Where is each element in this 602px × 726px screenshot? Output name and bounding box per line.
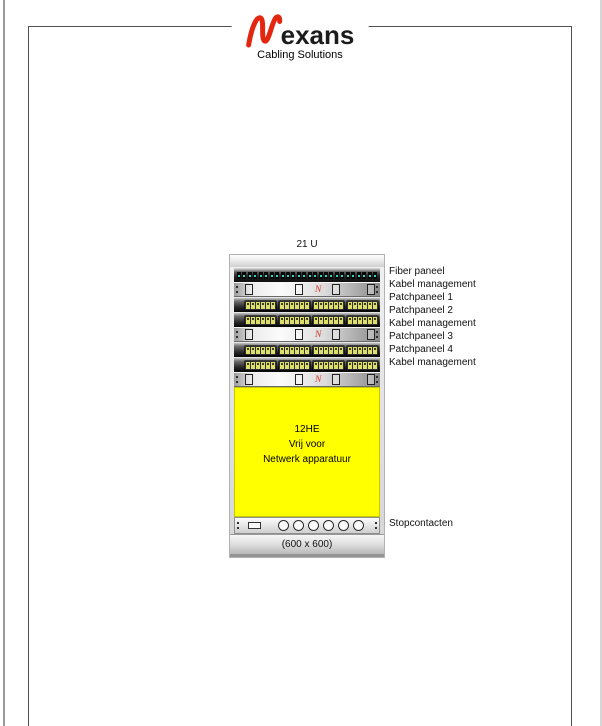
jack-group [279, 301, 310, 310]
rj45-jack-icon [261, 302, 265, 309]
nexans-logo: exans Cabling Solutions [232, 5, 369, 61]
mounting-holes-icon [236, 331, 238, 338]
document-page: exans Cabling Solutions 21 U NNN 12HE Vr… [0, 0, 602, 726]
rj45-jack-icon [271, 362, 275, 369]
rj45-jack-icon [246, 347, 250, 354]
mounting-holes-icon [376, 286, 378, 293]
rj45-jack-icon [358, 347, 362, 354]
unit-label: Kabel management [389, 278, 476, 291]
jack-groups [234, 357, 380, 370]
patch-panel [234, 297, 380, 312]
unit-label: Patchpaneel 3 [389, 330, 476, 343]
rj45-jack-icon [305, 347, 309, 354]
rj45-jack-icon [368, 362, 372, 369]
cable-management-panel: N [234, 282, 380, 297]
fiber-port-icon [362, 272, 366, 279]
cable-ring-icon [332, 374, 340, 385]
fiber-port-icon [313, 272, 317, 279]
power-outlet-icon [323, 520, 334, 531]
jack-groups [234, 342, 380, 355]
server-rack: NNN 12HE Vrij voor Netwerk apparatuur (6… [229, 254, 385, 558]
rj45-jack-icon [266, 362, 270, 369]
cable-ring-icon [295, 329, 303, 340]
logo-subtitle: Cabling Solutions [246, 49, 355, 61]
fiber-panel [234, 267, 380, 282]
mounting-holes-icon [236, 286, 238, 293]
free-space-line: Vrij voor [289, 437, 325, 452]
mounting-holes-icon [237, 522, 239, 529]
rj45-jack-icon [373, 317, 377, 324]
window-edge-left [3, 0, 5, 726]
rj45-jack-icon [246, 302, 250, 309]
free-space-line: Netwerk apparatuur [263, 452, 351, 467]
power-outlet-icon [353, 520, 364, 531]
rj45-jack-icon [246, 362, 250, 369]
rj45-jack-icon [339, 347, 343, 354]
rj45-jack-icon [285, 347, 289, 354]
rj45-jack-icon [334, 347, 338, 354]
jack-group [245, 301, 276, 310]
jack-group [245, 316, 276, 325]
cable-ring-icon [367, 374, 375, 385]
rj45-jack-icon [290, 362, 294, 369]
cable-ring-icon [295, 284, 303, 295]
power-outlet-icon [308, 520, 319, 531]
cable-management-row: N [234, 283, 380, 296]
rj45-jack-icon [300, 362, 304, 369]
rj45-jack-icon [280, 347, 284, 354]
rj45-jack-icon [368, 302, 372, 309]
rj45-jack-icon [334, 317, 338, 324]
jack-group [313, 316, 344, 325]
unit-label: Patchpaneel 1 [389, 291, 476, 304]
fiber-port-icon [248, 272, 252, 279]
rj45-jack-icon [329, 317, 333, 324]
rj45-jack-icon [251, 347, 255, 354]
rj45-jack-icon [319, 302, 323, 309]
jack-group [279, 361, 310, 370]
rj45-jack-icon [339, 317, 343, 324]
nexans-n-icon [246, 11, 284, 49]
rj45-jack-icon [300, 302, 304, 309]
fiber-port-icon [259, 272, 263, 279]
rj45-jack-icon [334, 302, 338, 309]
unit-label: Fiber paneel [389, 265, 476, 278]
free-space-line: 12HE [294, 422, 319, 437]
fiber-port-icon [368, 272, 372, 279]
rj45-jack-icon [348, 302, 352, 309]
logo-row: exans [246, 5, 355, 46]
unit-label: Patchpaneel 4 [389, 343, 476, 356]
fiber-port-icon [302, 272, 306, 279]
fiber-port-icon [373, 272, 377, 279]
jack-group [313, 361, 344, 370]
cable-management-panel: N [234, 372, 380, 387]
mounting-holes-icon [236, 376, 238, 383]
fiber-port-icon [242, 272, 246, 279]
rj45-jack-icon [305, 302, 309, 309]
rj45-jack-icon [324, 317, 328, 324]
rj45-jack-icon [373, 347, 377, 354]
rack-unit-labels: Fiber paneel Kabel management Patchpanee… [389, 265, 476, 369]
rj45-jack-icon [295, 347, 299, 354]
fiber-port-icon [329, 272, 333, 279]
rj45-jack-icon [319, 347, 323, 354]
jack-group [347, 301, 378, 310]
jack-group [245, 361, 276, 370]
jack-group [313, 346, 344, 355]
fiber-port-icon [319, 272, 323, 279]
rj45-jack-icon [319, 317, 323, 324]
rj45-jack-icon [295, 302, 299, 309]
patch-panel [234, 312, 380, 327]
logo-wordmark: exans [281, 25, 355, 46]
rj45-jack-icon [334, 362, 338, 369]
rj45-jack-icon [280, 362, 284, 369]
rj45-jack-icon [280, 302, 284, 309]
rj45-jack-icon [363, 302, 367, 309]
fiber-port-icon [291, 272, 295, 279]
fiber-port-icon [308, 272, 312, 279]
mounting-holes-icon [376, 376, 378, 383]
rj45-jack-icon [256, 347, 260, 354]
rj45-jack-icon [373, 362, 377, 369]
fiber-port-icon [351, 272, 355, 279]
fiber-port-icon [275, 272, 279, 279]
rj45-jack-icon [266, 317, 270, 324]
rj45-jack-icon [295, 317, 299, 324]
rj45-jack-icon [290, 302, 294, 309]
rj45-jack-icon [339, 302, 343, 309]
rj45-jack-icon [324, 302, 328, 309]
rj45-jack-icon [329, 347, 333, 354]
jack-group [347, 346, 378, 355]
rj45-jack-icon [285, 317, 289, 324]
rj45-jack-icon [324, 347, 328, 354]
rj45-jack-icon [300, 317, 304, 324]
rj45-jack-icon [314, 302, 318, 309]
cable-ring-icon [245, 284, 253, 295]
fiber-port-icon [270, 272, 274, 279]
cable-ring-icon [245, 374, 253, 385]
fiber-port-icon [340, 272, 344, 279]
power-outlet-icon [278, 520, 289, 531]
patch-panel [234, 342, 380, 357]
rack-height-label: 21 U [229, 239, 385, 250]
rack-units: NNN [234, 267, 380, 387]
rj45-jack-icon [358, 317, 362, 324]
fiber-port-icon [297, 272, 301, 279]
fiber-port-icon [324, 272, 328, 279]
cable-management-row: N [234, 328, 380, 341]
rj45-jack-icon [348, 362, 352, 369]
rj45-jack-icon [363, 317, 367, 324]
rj45-jack-icon [305, 362, 309, 369]
rj45-jack-icon [353, 347, 357, 354]
cable-ring-icon [332, 284, 340, 295]
rj45-jack-icon [251, 362, 255, 369]
fiber-port-icon [253, 272, 257, 279]
cable-management-row: N [234, 373, 380, 386]
rj45-jack-icon [256, 362, 260, 369]
rj45-jack-icon [329, 302, 333, 309]
rack-footprint-label: (600 x 600) [282, 539, 333, 550]
jack-group [347, 316, 378, 325]
nexans-mark: N [315, 330, 322, 339]
rj45-jack-icon [373, 302, 377, 309]
fiber-port-icon [286, 272, 290, 279]
rj45-jack-icon [314, 317, 318, 324]
rj45-jack-icon [358, 362, 362, 369]
rj45-jack-icon [271, 302, 275, 309]
unit-label: Patchpaneel 2 [389, 304, 476, 317]
free-space-panel: 12HE Vrij voor Netwerk apparatuur [234, 387, 380, 517]
jack-group [245, 346, 276, 355]
rj45-jack-icon [339, 362, 343, 369]
rj45-jack-icon [324, 362, 328, 369]
rj45-jack-icon [271, 317, 275, 324]
rj45-jack-icon [271, 347, 275, 354]
power-outlets [278, 520, 364, 531]
jack-groups [234, 297, 380, 310]
rj45-jack-icon [319, 362, 323, 369]
fiber-port-icon [346, 272, 350, 279]
rj45-jack-icon [251, 302, 255, 309]
fiber-port-icon [264, 272, 268, 279]
nexans-mark: N [315, 375, 322, 384]
rack-base: (600 x 600) [230, 534, 384, 557]
power-switch-icon [248, 522, 261, 529]
rj45-jack-icon [353, 302, 357, 309]
rj45-jack-icon [285, 302, 289, 309]
power-strip [234, 517, 380, 534]
rj45-jack-icon [280, 317, 284, 324]
power-outlet-icon [293, 520, 304, 531]
rj45-jack-icon [363, 347, 367, 354]
rj45-jack-icon [261, 347, 265, 354]
cable-management-panel: N [234, 327, 380, 342]
mounting-holes-icon [375, 522, 377, 529]
rj45-jack-icon [305, 317, 309, 324]
cable-ring-icon [367, 284, 375, 295]
rj45-jack-icon [329, 362, 333, 369]
power-strip-label: Stopcontacten [389, 518, 453, 529]
rj45-jack-icon [314, 362, 318, 369]
patch-panel [234, 357, 380, 372]
cable-ring-icon [295, 374, 303, 385]
fiber-port-icon [237, 272, 241, 279]
rj45-jack-icon [256, 317, 260, 324]
jack-groups [234, 312, 380, 325]
jack-group [313, 301, 344, 310]
fiber-port-icon [357, 272, 361, 279]
rj45-jack-icon [290, 317, 294, 324]
cable-ring-icon [332, 329, 340, 340]
rj45-jack-icon [348, 347, 352, 354]
rj45-jack-icon [256, 302, 260, 309]
rj45-jack-icon [261, 362, 265, 369]
cable-ring-icon [245, 329, 253, 340]
fiber-port-icon [281, 272, 285, 279]
fiber-port-icon [335, 272, 339, 279]
rj45-jack-icon [261, 317, 265, 324]
rj45-jack-icon [353, 362, 357, 369]
rj45-jack-icon [266, 302, 270, 309]
rj45-jack-icon [368, 347, 372, 354]
rj45-jack-icon [251, 317, 255, 324]
rj45-jack-icon [285, 362, 289, 369]
rj45-jack-icon [348, 317, 352, 324]
rj45-jack-icon [295, 362, 299, 369]
rj45-jack-icon [353, 317, 357, 324]
rj45-jack-icon [363, 362, 367, 369]
nexans-mark: N [315, 285, 322, 294]
jack-group [347, 361, 378, 370]
rj45-jack-icon [266, 347, 270, 354]
fiber-ports [234, 267, 380, 279]
unit-label: Kabel management [389, 356, 476, 369]
unit-label: Kabel management [389, 317, 476, 330]
rack-top-frame [230, 255, 384, 267]
power-outlet-icon [338, 520, 349, 531]
rj45-jack-icon [300, 347, 304, 354]
rj45-jack-icon [358, 302, 362, 309]
jack-group [279, 316, 310, 325]
jack-group [279, 346, 310, 355]
rj45-jack-icon [246, 317, 250, 324]
rj45-jack-icon [368, 317, 372, 324]
cable-ring-icon [367, 329, 375, 340]
rj45-jack-icon [314, 347, 318, 354]
rj45-jack-icon [290, 347, 294, 354]
mounting-holes-icon [376, 331, 378, 338]
